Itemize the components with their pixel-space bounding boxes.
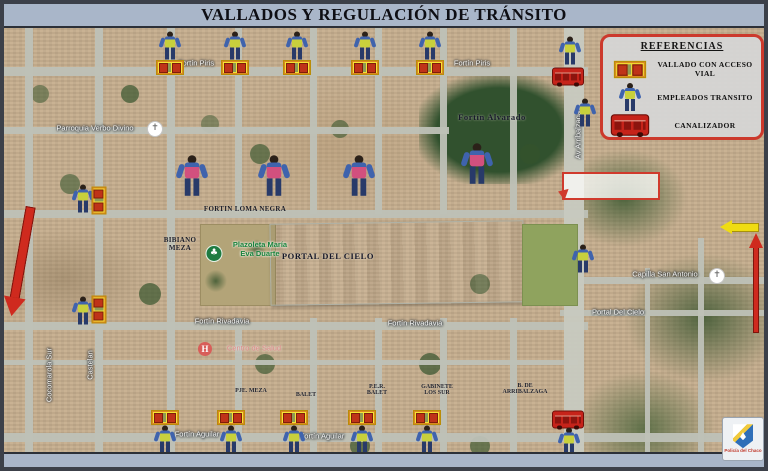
transit-employee-icon <box>465 143 488 184</box>
barrier-icon <box>151 410 179 425</box>
street <box>310 318 317 452</box>
church-icon: ✝ <box>147 121 163 137</box>
barrier-icon <box>283 60 311 75</box>
transit-employee-icon <box>422 32 438 60</box>
barrier-icon <box>92 187 107 215</box>
place-label: GABINETELOS SUR <box>421 384 453 396</box>
callout-box <box>562 172 660 200</box>
church-marker: ✝ <box>147 117 163 137</box>
police-logo: Policía del Chaco <box>722 417 764 461</box>
footer-band <box>4 452 764 467</box>
street <box>560 310 764 316</box>
slide-page: VALLADOS Y REGULACIÓN DE TRÁNSITO REFERE… <box>0 0 768 471</box>
satellite-map: REFERENCIAS VALLADO CON ACCESO VIAL EMPL… <box>4 28 764 452</box>
street-label: Cocomarola Sur <box>45 348 54 402</box>
plazoleta-block <box>200 224 276 306</box>
transit-employee-icon <box>227 32 243 60</box>
transit-employee-icon <box>262 155 285 196</box>
street <box>95 28 103 452</box>
transit-employee-icon <box>157 426 173 454</box>
street <box>167 28 175 452</box>
employee-marker <box>575 245 591 278</box>
street <box>698 238 704 452</box>
hospital-marker: H <box>198 339 212 357</box>
header-band: VALLADOS Y REGULACIÓN DE TRÁNSITO <box>4 4 764 28</box>
channelizer-icon <box>552 411 584 429</box>
church-marker: ✝ <box>709 264 725 284</box>
street <box>510 318 517 452</box>
page-title: VALLADOS Y REGULACIÓN DE TRÁNSITO <box>201 5 567 25</box>
transit-employee-icon <box>162 32 178 60</box>
barrier-icon <box>156 60 184 75</box>
hospital-icon: H <box>198 342 212 356</box>
barrier-v-marker <box>85 193 113 213</box>
transit-employee-icon <box>180 155 203 196</box>
street <box>375 318 382 452</box>
street <box>4 127 449 134</box>
legend: REFERENCIAS VALLADO CON ACCESO VIAL EMPL… <box>600 34 764 140</box>
legend-label: EMPLEADOS TRANSITO <box>653 93 757 102</box>
barrier-marker <box>221 60 249 80</box>
legend-label: VALLADO CON ACCESO VIAL <box>653 60 757 78</box>
barrier-icon <box>280 410 308 425</box>
barrier-marker <box>351 60 379 80</box>
police-label: Policía del Chaco <box>724 449 761 454</box>
park-marker: ♣ <box>206 242 223 262</box>
yellow-direction-arrow <box>720 220 758 233</box>
barrier-icon <box>413 410 441 425</box>
channelizer-marker <box>552 68 584 91</box>
street <box>645 268 650 452</box>
transit-employee-icon <box>575 245 591 273</box>
employee-lg-marker <box>266 162 282 195</box>
barrier-marker <box>156 60 184 80</box>
barrier-marker <box>416 60 444 80</box>
channelizer-icon <box>552 68 584 86</box>
street <box>440 318 447 452</box>
transit-employee-icon <box>289 32 305 60</box>
street <box>4 433 764 442</box>
barrier-icon <box>607 62 653 77</box>
police-shield-icon <box>733 424 753 448</box>
street <box>560 277 764 284</box>
employee-lg-marker <box>351 162 367 195</box>
legend-item-vallado: VALLADO CON ACCESO VIAL <box>607 55 757 83</box>
barrier-icon <box>348 410 376 425</box>
legend-label: CANALIZADOR <box>653 121 757 130</box>
southbound-direction-arrow <box>0 205 41 319</box>
employee-lg-marker <box>184 162 200 195</box>
street <box>375 28 382 214</box>
transit-employee-icon <box>357 32 373 60</box>
transit-employee-icon <box>577 99 593 127</box>
northbound-direction-arrow <box>749 233 763 333</box>
street-label: Castelan <box>86 350 95 380</box>
transit-employee-icon <box>223 426 239 454</box>
legend-item-empleados: EMPLEADOS TRANSITO <box>607 83 757 111</box>
employee-lg-marker <box>469 150 485 183</box>
legend-title: REFERENCIAS <box>607 41 757 52</box>
transit-employee-icon <box>419 426 435 454</box>
transit-employee-icon <box>354 426 370 454</box>
barrier-marker <box>283 60 311 80</box>
park-icon: ♣ <box>206 245 223 262</box>
barrier-v-marker <box>85 302 113 322</box>
employee-marker <box>562 37 578 70</box>
barrier-icon <box>416 60 444 75</box>
barrier-icon <box>92 296 107 324</box>
employee-marker <box>577 99 593 132</box>
street <box>510 28 517 214</box>
street <box>440 28 447 214</box>
tree-dots <box>4 28 16 40</box>
channelizer-icon <box>607 116 653 134</box>
street <box>4 360 578 365</box>
transit-employee-icon <box>286 426 302 454</box>
portal-del-cielo-building <box>269 220 524 306</box>
barrier-icon <box>351 60 379 75</box>
transit-employee-icon <box>607 83 653 111</box>
transit-employee-icon <box>347 155 370 196</box>
street <box>310 28 317 214</box>
legend-item-canalizador: CANALIZADOR <box>607 111 757 139</box>
barrier-icon <box>221 60 249 75</box>
church-icon: ✝ <box>709 268 725 284</box>
sports-field <box>522 224 578 306</box>
barrier-icon <box>217 410 245 425</box>
transit-employee-icon <box>562 37 578 65</box>
